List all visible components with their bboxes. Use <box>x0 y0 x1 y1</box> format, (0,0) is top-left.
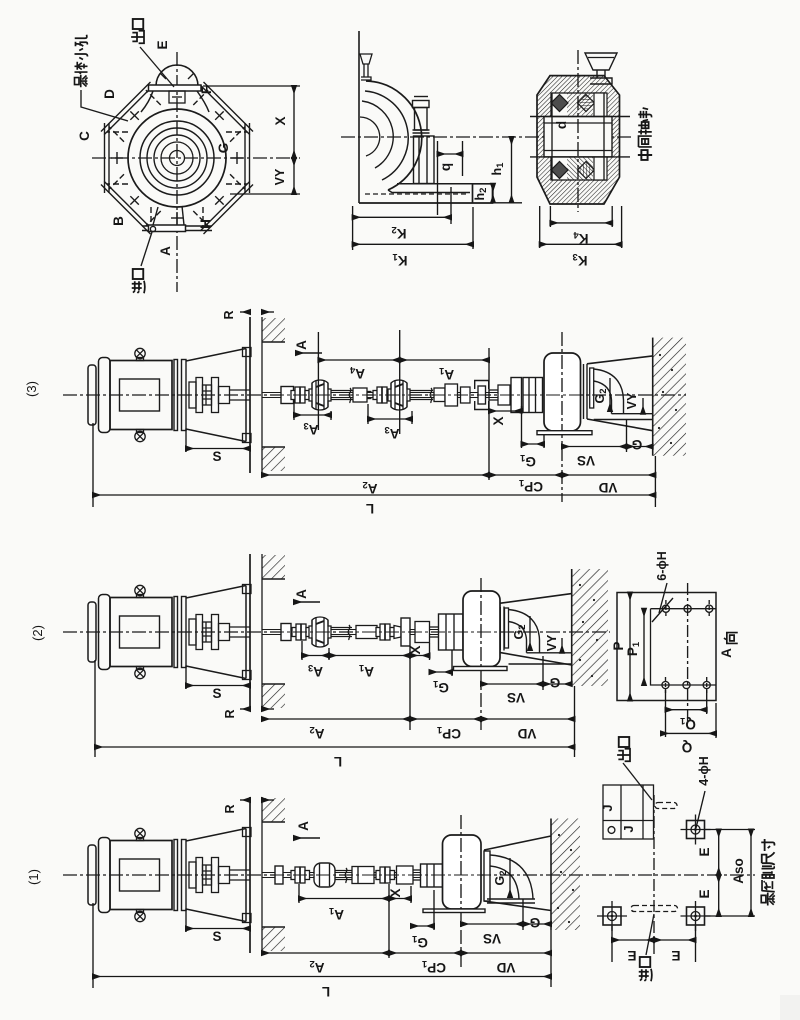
svg-text:A: A <box>294 589 309 599</box>
svg-text:L: L <box>322 984 330 999</box>
svg-text:E: E <box>671 948 680 963</box>
svg-text:VD: VD <box>496 960 515 975</box>
svg-text:R: R <box>222 310 236 319</box>
svg-text:L: L <box>334 754 342 769</box>
svg-text:A: A <box>158 246 173 256</box>
svg-text:E: E <box>627 948 636 963</box>
svg-text:A: A <box>296 821 311 831</box>
svg-text:VD: VD <box>517 726 536 741</box>
svg-text:X: X <box>491 416 506 425</box>
svg-text:R: R <box>223 709 237 718</box>
svg-text:X: X <box>388 888 403 897</box>
svg-text:VY: VY <box>545 634 559 651</box>
svg-text:VD: VD <box>598 480 617 495</box>
svg-text:6-ɸH: 6-ɸH <box>655 551 669 581</box>
svg-text:F: F <box>199 86 214 94</box>
svg-text:Q: Q <box>682 740 693 755</box>
svg-text:(1): (1) <box>26 869 41 885</box>
svg-text:P: P <box>611 641 626 650</box>
svg-text:J: J <box>601 804 615 811</box>
svg-text:E: E <box>155 40 170 49</box>
svg-text:C: C <box>77 131 92 141</box>
svg-text:G: G <box>632 437 643 452</box>
svg-text:G: G <box>530 915 541 930</box>
svg-text:(2): (2) <box>30 625 45 641</box>
svg-text:R: R <box>223 804 237 813</box>
svg-text:VS: VS <box>507 690 525 705</box>
svg-text:E: E <box>697 889 712 898</box>
svg-text:G: G <box>550 675 561 690</box>
svg-text:A: A <box>294 340 309 350</box>
svg-text:4-ɸH: 4-ɸH <box>697 756 711 786</box>
svg-text:X: X <box>273 116 288 125</box>
svg-text:H: H <box>198 219 213 229</box>
svg-text:VS: VS <box>483 931 501 946</box>
svg-text:D: D <box>102 89 117 99</box>
svg-text:VS: VS <box>577 453 595 468</box>
svg-text:VY: VY <box>273 168 287 185</box>
svg-text:d: d <box>554 121 569 129</box>
svg-text:B: B <box>111 216 126 226</box>
svg-text:(3): (3) <box>24 381 39 397</box>
svg-text:X: X <box>408 645 423 654</box>
svg-text:J: J <box>622 825 636 832</box>
svg-text:E: E <box>697 847 712 856</box>
svg-text:L: L <box>366 501 374 516</box>
svg-text:G: G <box>216 143 231 154</box>
svg-text:A: A <box>719 648 734 658</box>
svg-text:q: q <box>438 163 453 171</box>
svg-text:Aso: Aso <box>731 858 746 884</box>
